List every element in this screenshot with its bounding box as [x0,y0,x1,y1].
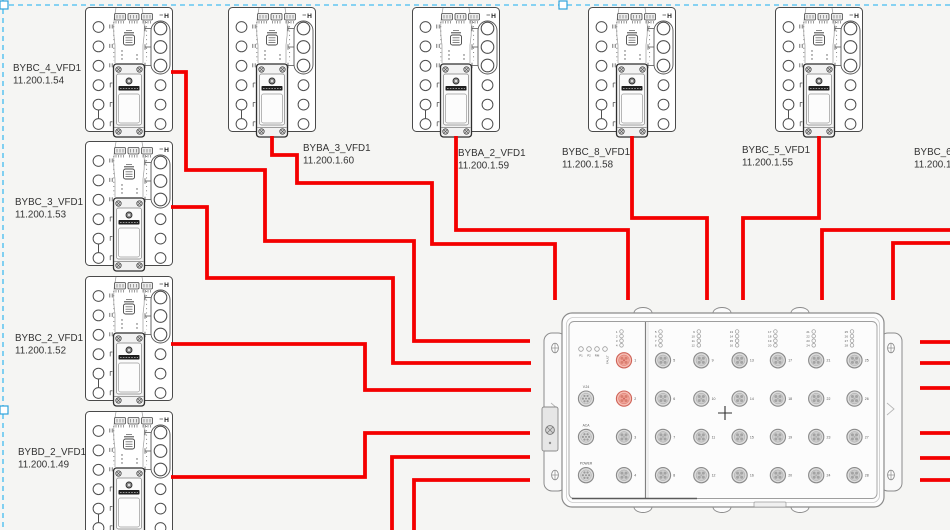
port-led-number: 15 [730,339,734,343]
m12-port-icon [809,353,824,368]
utility-port-label: V.24 [583,385,590,389]
port-led-icon [812,334,816,338]
device-label-name: BYBD_2_VFD1 [18,447,86,458]
port-led-icon [697,334,701,338]
vfd-graphic [86,277,173,407]
utility-port-icon [578,391,593,406]
port-number: 24 [827,474,831,478]
m12-port-icon [732,353,747,368]
device-label-ip: 11.200.1.59 [458,161,509,172]
m12-port-highlighted-icon [616,391,631,406]
device-label-name: BYBC_5_VFD1 [742,145,810,156]
port-led-number: 20 [768,344,772,348]
cable-off-screen-right-11[interactable] [893,243,950,300]
device-label-name: BYBA_3_VFD1 [303,143,371,154]
port-led-icon [659,344,663,348]
port-led-number: 21 [806,330,810,334]
utility-port-icon [578,468,593,483]
edge-clip [791,507,809,513]
port-led-number: 16 [730,344,734,348]
port-led-number: 10 [691,334,695,338]
device-label-ip: 11.200.1. [914,160,950,171]
status-led-icon [579,347,584,352]
port-led-icon [620,334,624,338]
m12-port-icon [770,353,785,368]
m12-port-icon [655,353,670,368]
device-label-ip: 11.200.1.58 [562,160,614,171]
utility-port-icon [578,429,593,444]
device-h-label: H [667,13,672,20]
m12-port-icon [694,353,709,368]
port-led-icon [850,339,854,343]
status-led-label: FAULT [606,355,610,364]
port-number: 20 [788,474,792,478]
port-number: 9 [712,359,714,363]
port-led-icon [659,330,663,334]
vfd-device-bybc_3_vfd1[interactable]: HBYBC_3_VFD111.200.1.53 [15,142,173,272]
port-number: 13 [750,359,754,363]
edge-clip [713,308,731,314]
m12-port-icon [809,468,824,483]
port-led-number: 22 [806,334,810,338]
port-led-number: 14 [730,334,734,338]
device-label-ip: 11.200.1.52 [15,346,66,357]
vfd-device-bybd_2_vfd1[interactable]: HBYBD_2_VFD111.200.1.49 [18,412,173,530]
port-led-icon [735,334,739,338]
m12-port-icon [616,468,631,483]
port-led-icon [697,330,701,334]
selection-handle[interactable] [0,1,8,9]
port-number: 3 [634,435,636,439]
port-led-number: 23 [806,339,810,343]
port-number: 25 [865,359,869,363]
port-number: 7 [673,435,675,439]
port-led-number: 26 [845,334,849,338]
port-led-number: 11 [692,339,695,343]
device-label-ip: 11.200.1.49 [18,460,69,471]
port-number: 21 [827,359,831,363]
switch-device[interactable]: P1P2RMFAULTV.24ACAPOWER12341234567856789… [542,308,902,513]
port-number: 1 [634,359,636,363]
port-number: 22 [827,397,831,401]
cable-off-screen-bottom-5[interactable] [414,480,530,530]
port-number: 2 [634,397,636,401]
port-number: 17 [788,359,792,363]
port-number: 8 [673,474,675,478]
port-led-icon [850,334,854,338]
device-h-label: H [307,13,312,20]
port-led-icon [812,344,816,348]
vfd-device-bybc_2_vfd1[interactable]: HBYBC_2_VFD111.200.1.52 [15,277,173,407]
port-led-icon [812,330,816,334]
vfd-graphic [86,412,173,530]
port-number: 28 [865,474,869,478]
m12-port-icon [694,429,709,444]
port-led-icon [659,334,663,338]
vfd-graphic [589,8,676,138]
status-led-icon [603,347,608,352]
port-led-icon [697,339,701,343]
port-led-icon [850,344,854,348]
vfd-device-bybc_4_vfd1[interactable]: HBYBC_4_VFD111.200.1.54 [13,8,173,138]
port-led-icon [697,344,701,348]
selection-handle[interactable] [559,1,567,9]
port-number: 23 [827,435,831,439]
port-led-number: 12 [691,344,695,348]
status-led-label: P2 [587,354,591,358]
edge-clip [713,507,731,513]
device-h-label: H [854,13,859,20]
port-led-icon [812,339,816,343]
vfd-device-bybc_8_vfd1[interactable]: HBYBC_8_VFD111.200.1.58 [562,8,676,171]
switch-faceplate [569,322,877,499]
port-led-icon [735,339,739,343]
m12-port-icon [847,429,862,444]
device-h-label: H [164,417,169,424]
cable-bybc-2-vfd1-2[interactable] [171,344,531,390]
port-led-number: 18 [768,334,772,338]
device-label-name: BYBC_6_ [914,147,950,158]
device-label-ip: 11.200.1.53 [15,210,67,221]
port-led-icon [659,339,663,343]
port-led-icon [620,330,624,334]
m12-port-icon [770,468,785,483]
port-led-number: 19 [768,339,772,343]
port-number: 27 [865,435,869,439]
device-label-name: BYBC_8_VFD1 [562,147,630,158]
cable-bybd-2-vfd1-3[interactable] [171,433,530,477]
port-led-number: 13 [730,330,734,334]
m12-port-icon [694,391,709,406]
m12-port-icon [732,468,747,483]
device-label-name: BYBC_4_VFD1 [13,63,81,74]
m12-port-icon [694,468,709,483]
vfd-graphic [413,8,500,138]
m12-port-icon [732,429,747,444]
m12-port-icon [655,468,670,483]
port-led-number: 27 [845,339,849,343]
m12-port-icon [809,429,824,444]
cable-bybc-8-vfd1-8[interactable] [632,136,707,300]
device-label-name: BYBA_2_VFD1 [458,148,526,159]
vfd-device-bybc_5_vfd1[interactable]: HBYBC_5_VFD111.200.1.55 [742,8,863,169]
port-led-number: 28 [845,344,849,348]
status-led-icon [587,347,592,352]
vfd-device-byba_2_vfd1[interactable]: HBYBA_2_VFD111.200.1.59 [413,8,526,172]
m12-port-icon [847,468,862,483]
m12-port-icon [770,391,785,406]
port-number: 16 [750,474,754,478]
port-number: 10 [712,397,716,401]
device-h-label: H [491,13,496,20]
port-number: 18 [788,397,792,401]
status-led-label: P1 [579,354,583,358]
port-led-number: 25 [845,330,849,334]
m12-port-icon [655,429,670,444]
m12-port-icon [809,391,824,406]
vfd-graphic [86,142,173,272]
port-led-icon [850,330,854,334]
device-h-label: H [164,13,169,20]
selection-handle[interactable] [0,406,8,414]
port-led-number: 24 [806,344,810,348]
port-number: 26 [865,397,869,401]
vfd-device-byba_3_vfd1[interactable]: HBYBA_3_VFD111.200.1.60 [229,8,371,167]
edge-clip [634,507,652,513]
port-number: 12 [712,474,716,478]
wiring-diagram: HBYBC_4_VFD111.200.1.54HBYBC_3_VFD111.20… [0,0,950,530]
m12-port-icon [655,391,670,406]
edge-clip [634,308,652,314]
name-plate [754,502,786,507]
port-led-icon [735,344,739,348]
utility-port-label: POWER [580,462,593,466]
port-number: 11 [712,435,716,439]
port-led-icon [774,344,778,348]
port-led-icon [774,339,778,343]
port-led-icon [620,339,624,343]
m12-port-icon [847,353,862,368]
diagram-canvas[interactable]: HBYBC_4_VFD111.200.1.54HBYBC_3_VFD111.20… [0,0,950,530]
utility-port-label: ACA [583,423,591,427]
port-led-icon [620,344,624,348]
port-number: 19 [788,435,792,439]
m12-port-icon [847,391,862,406]
device-h-label: H [164,282,169,289]
cable-off-screen-right-10[interactable] [822,230,950,300]
vfd-graphic [86,8,173,138]
m12-port-icon [616,429,631,444]
m12-port-icon [732,391,747,406]
port-number: 15 [750,435,754,439]
port-led-icon [774,334,778,338]
port-led-icon [735,330,739,334]
port-number: 6 [673,397,675,401]
port-number: 4 [634,474,636,478]
port-led-icon [774,330,778,334]
port-number: 14 [750,397,754,401]
edge-clip [791,308,809,314]
device-label-ip: 11.200.1.60 [303,156,355,167]
device-h-label: H [164,147,169,154]
vfd-device-bybc_6[interactable]: BYBC_6_11.200.1. [914,147,950,171]
port-led-number: 17 [768,330,772,334]
device-label-name: BYBC_3_VFD1 [15,197,83,208]
m12-port-icon [770,429,785,444]
device-label-name: BYBC_2_VFD1 [15,333,83,344]
m12-port-highlighted-icon [616,353,631,368]
status-led-icon [595,347,600,352]
vfd-graphic [776,8,863,138]
status-led-label: RM [595,354,600,358]
device-label-ip: 11.200.1.54 [13,76,65,87]
vfd-graphic [229,8,316,138]
device-label-ip: 11.200.1.55 [742,158,794,169]
port-number: 5 [673,359,675,363]
